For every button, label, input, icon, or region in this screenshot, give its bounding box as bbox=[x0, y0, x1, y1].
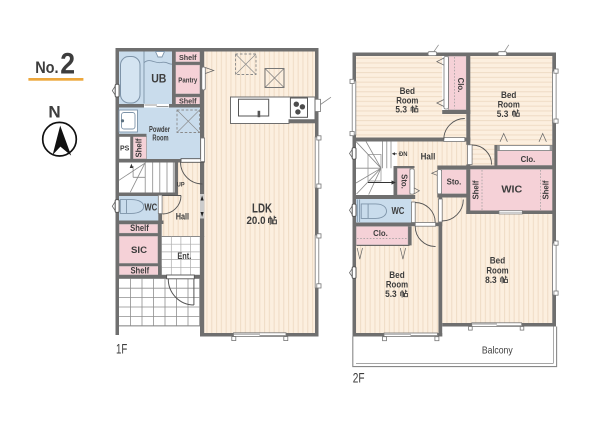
svg-text:PS: PS bbox=[120, 146, 130, 153]
svg-text:Shelf: Shelf bbox=[135, 138, 144, 157]
svg-text:Hall: Hall bbox=[176, 212, 189, 222]
svg-text:LDK: LDK bbox=[252, 202, 272, 216]
svg-text:2F: 2F bbox=[353, 370, 365, 386]
svg-text:UP: UP bbox=[177, 181, 185, 188]
svg-text:Shelf: Shelf bbox=[472, 180, 481, 199]
svg-text:5.3: 5.3 bbox=[497, 109, 509, 120]
svg-text:Shelf: Shelf bbox=[130, 223, 149, 233]
svg-text:Ent.: Ent. bbox=[177, 251, 191, 261]
svg-text:Sto.: Sto. bbox=[399, 174, 408, 189]
svg-text:2: 2 bbox=[60, 47, 75, 80]
svg-text:Shelf: Shelf bbox=[130, 266, 149, 276]
svg-text:20.0: 20.0 bbox=[247, 215, 266, 227]
svg-text:Clo.: Clo. bbox=[373, 229, 388, 238]
svg-text:Clo.: Clo. bbox=[456, 78, 465, 93]
svg-text:5.3: 5.3 bbox=[395, 105, 407, 116]
svg-text:Shelf: Shelf bbox=[179, 53, 197, 62]
svg-text:Clo.: Clo. bbox=[521, 155, 536, 164]
svg-text:No.: No. bbox=[35, 59, 58, 77]
svg-text:Pantry: Pantry bbox=[178, 76, 197, 85]
svg-text:DN: DN bbox=[399, 151, 408, 158]
svg-text:8.3: 8.3 bbox=[485, 275, 497, 286]
svg-text:WIC: WIC bbox=[501, 185, 522, 196]
svg-text:5.3: 5.3 bbox=[385, 289, 397, 300]
svg-text:Balcony: Balcony bbox=[482, 345, 513, 357]
svg-text:Shelf: Shelf bbox=[542, 180, 551, 199]
svg-text:Sto.: Sto. bbox=[447, 178, 462, 187]
svg-text:Shelf: Shelf bbox=[179, 96, 197, 105]
svg-text:N: N bbox=[48, 103, 60, 122]
svg-text:WC: WC bbox=[144, 202, 157, 214]
svg-text:WC: WC bbox=[391, 205, 404, 217]
svg-text:1F: 1F bbox=[116, 341, 127, 357]
svg-text:SIC: SIC bbox=[131, 245, 147, 256]
svg-text:UB: UB bbox=[151, 71, 166, 85]
svg-text:Hall: Hall bbox=[421, 152, 436, 162]
svg-text:Room: Room bbox=[152, 133, 168, 143]
